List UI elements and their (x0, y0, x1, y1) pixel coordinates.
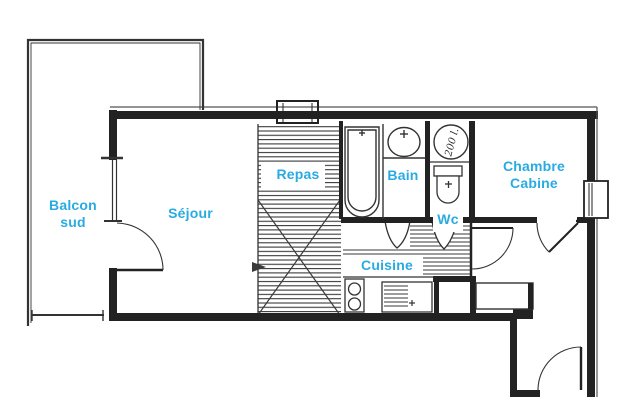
room-label-dining: Repas (260, 166, 336, 183)
water-heater-icon: 200 l. (434, 125, 468, 159)
room-label-wc: Wc (430, 211, 466, 228)
balcony-label-line1: Balcon (30, 197, 116, 214)
room-label-bathroom: Bain (368, 167, 438, 184)
room-label-balcony: Balcon sud (30, 197, 116, 231)
floor-plan: 200 l. (0, 0, 625, 401)
door-hall (472, 228, 513, 269)
bedroom-label-line1: Chambre (489, 158, 579, 175)
kitchen-sink-icon (382, 282, 432, 312)
stove-icon (345, 279, 364, 312)
hatch-dining-strip (258, 124, 341, 314)
door-bathroom (385, 221, 410, 248)
window-bedroom-icon (576, 181, 608, 221)
room-label-bedroom: Chambre Cabine (489, 158, 579, 192)
room-label-living: Séjour (148, 205, 233, 222)
closet (476, 283, 533, 309)
bedroom-label-line2: Cabine (489, 175, 579, 192)
washbasin-icon (388, 128, 420, 157)
balcony-label-line2: sud (30, 214, 116, 231)
door-balcony (114, 223, 163, 270)
toilet-icon (434, 166, 462, 203)
door-entrance (538, 347, 581, 390)
room-label-kitchen: Cuisine (345, 257, 429, 274)
door-bedroom (537, 223, 578, 252)
